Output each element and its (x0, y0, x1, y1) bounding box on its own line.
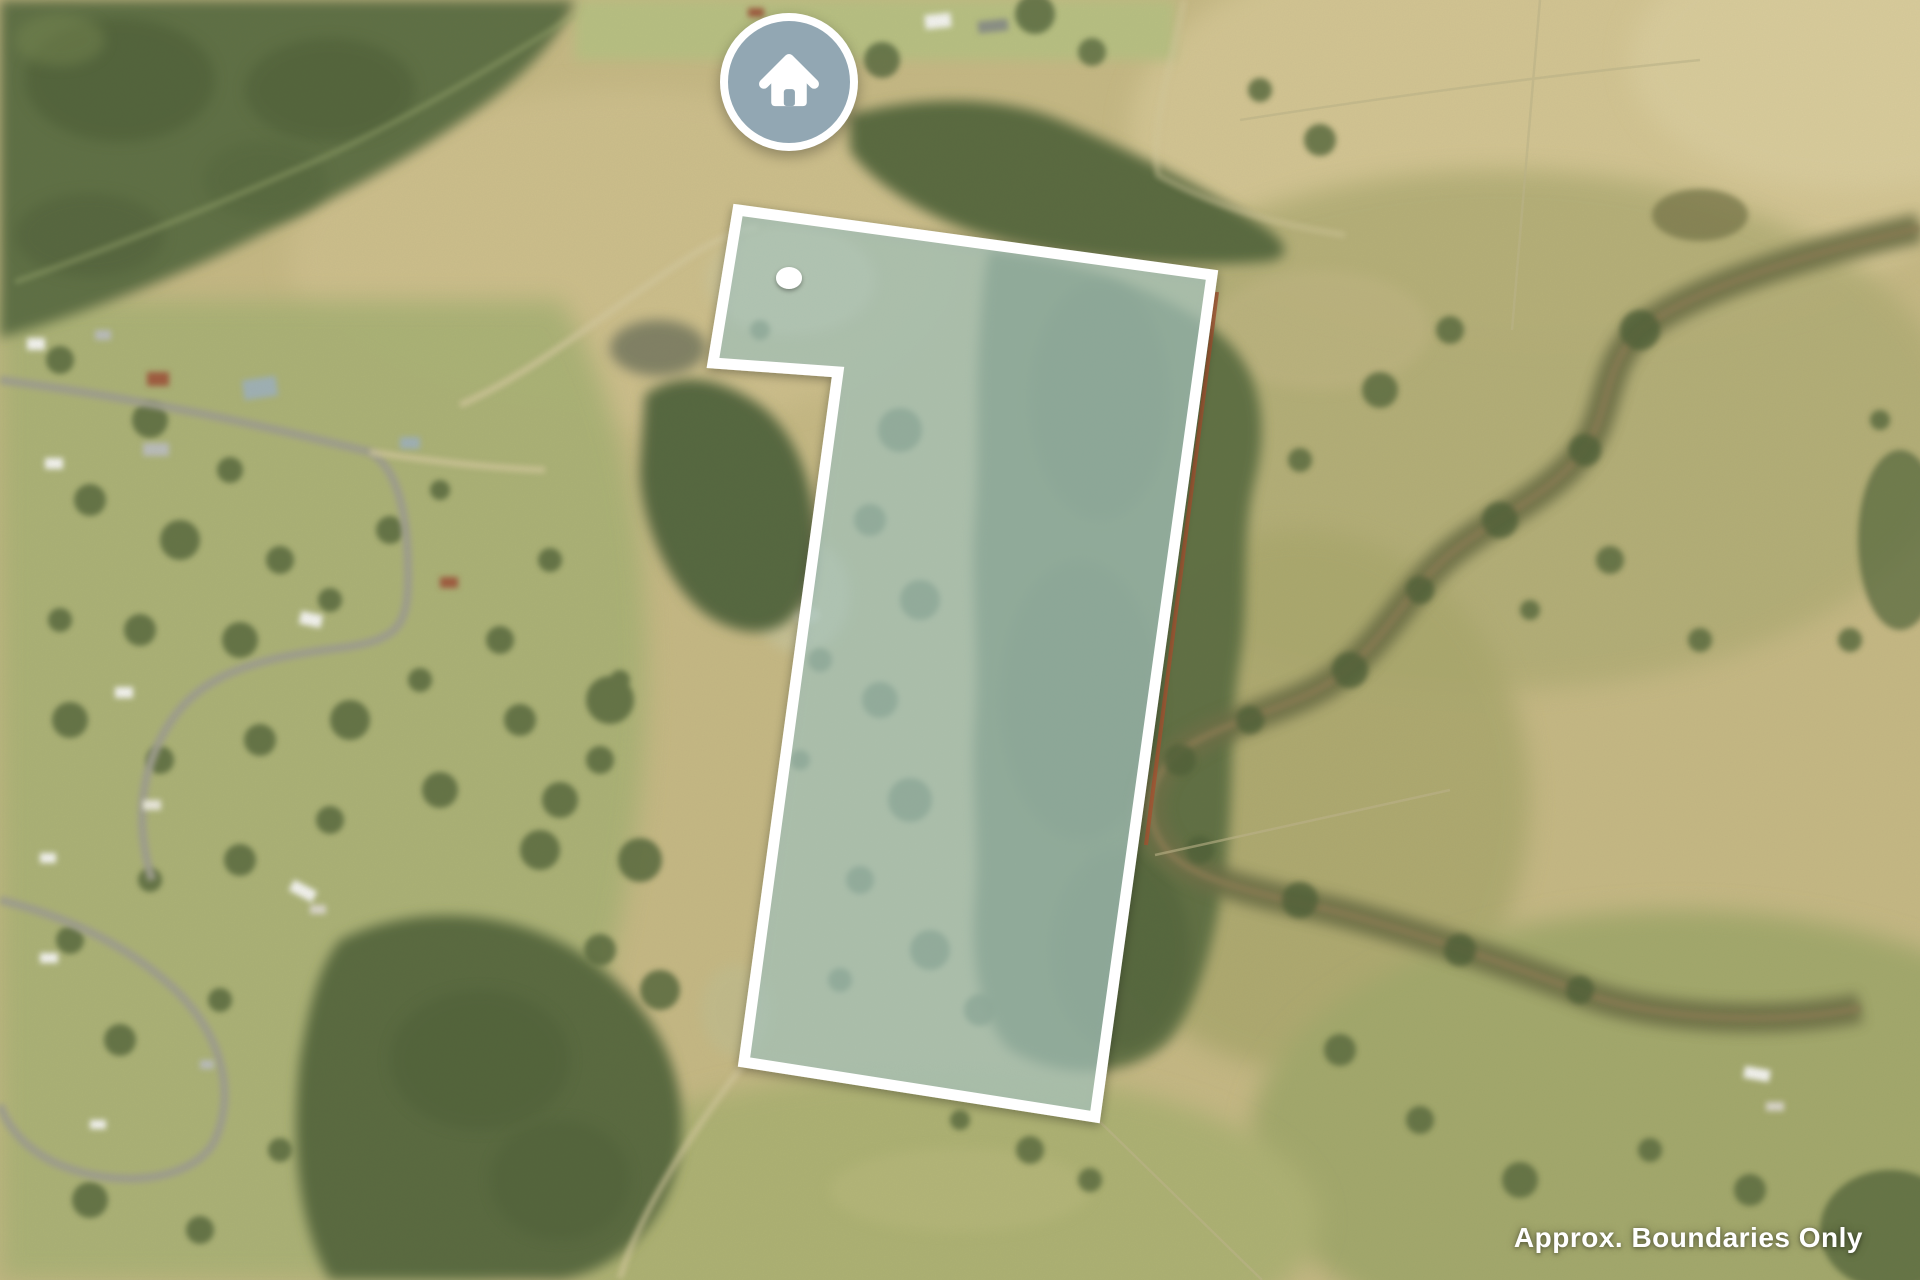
property-boundary-polygon[interactable] (713, 210, 1212, 1117)
pin-anchor-dot (776, 267, 802, 289)
boundary-overlay (0, 0, 1920, 1280)
property-pin[interactable] (720, 13, 858, 151)
house-icon (752, 44, 826, 118)
boundaries-disclaimer: Approx. Boundaries Only (1514, 1222, 1863, 1254)
aerial-property-map: Approx. Boundaries Only (0, 0, 1920, 1280)
